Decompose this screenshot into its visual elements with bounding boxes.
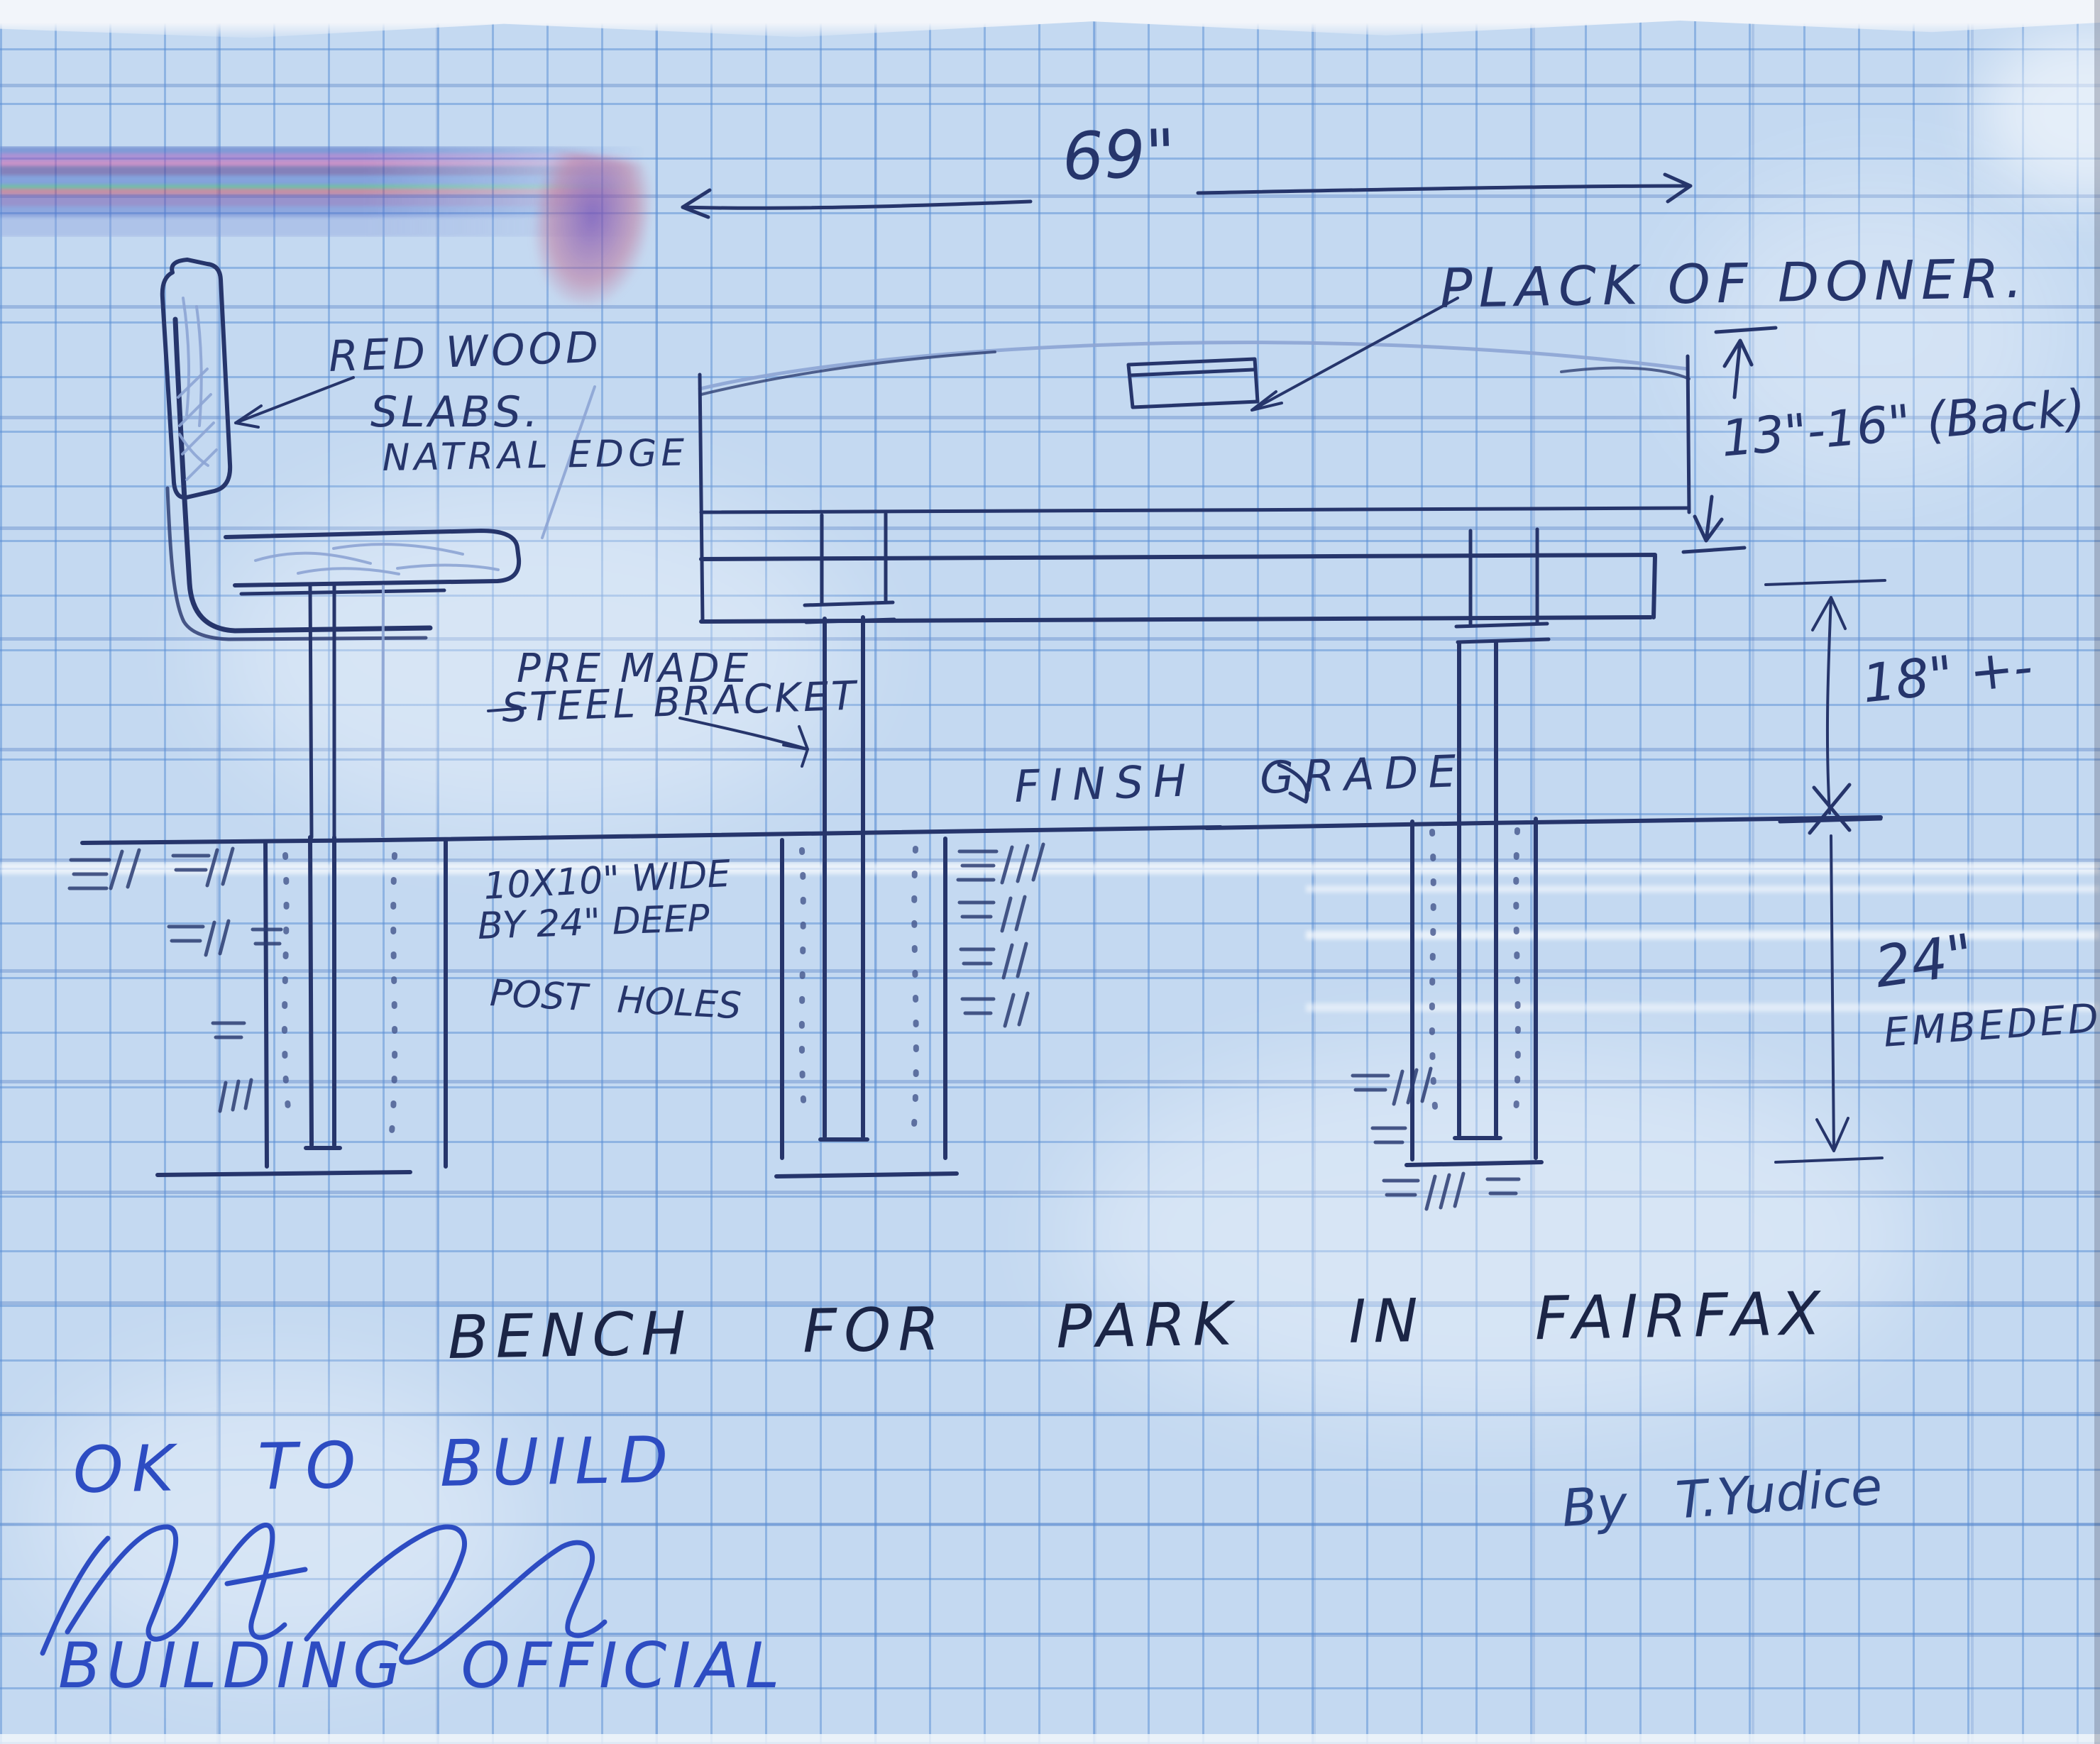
top-arc-left [701, 352, 995, 394]
front-elevation [700, 352, 1689, 642]
soil-hatching [70, 844, 1519, 1209]
embed-depth-dimension [1776, 836, 1882, 1162]
embedded-post [306, 837, 340, 1148]
material-note-line2: SLABS. [370, 387, 542, 437]
hole-walls [265, 840, 446, 1166]
back-rail-bottom [701, 508, 1688, 512]
plaque-label: PLACK OF DONER. [1439, 247, 2030, 320]
elevation-left-edge [700, 375, 703, 622]
donor-plaque-rect [1128, 359, 1258, 407]
bracket-right-front [1456, 529, 1549, 642]
hole-walls [1412, 819, 1536, 1159]
arrow-up-icon [1716, 328, 1776, 397]
approval-stamp-text: OK TO BUILD [72, 1423, 677, 1508]
embed-depth-dim-label: 24" [1871, 922, 1977, 1000]
hole-bottom [158, 1172, 410, 1175]
arrow-right-icon [1665, 175, 1691, 202]
plaque-leader-arrow [1252, 298, 1458, 410]
post-hole-note-line2: BY 24" DEEP [477, 898, 710, 948]
seat-front-edge [241, 590, 444, 594]
steel-bracket-side-inner [167, 488, 426, 639]
graph-paper-scan: 69" PLACK OF DONER. RED WOOD SLABS. NATR… [0, 0, 2100, 1744]
scan-right-edge [2094, 0, 2100, 1744]
finish-grade-line [82, 817, 1881, 843]
post-hole-left [158, 837, 446, 1175]
width-dimension-line [683, 186, 1689, 208]
grade-cross-mark [1780, 785, 1881, 833]
soil-hatch-middle [958, 844, 1043, 1026]
soil-hatch-left [70, 849, 281, 1111]
top-arc-right [1561, 368, 1689, 379]
embedded-post [1455, 641, 1500, 1138]
arrow-left-icon [683, 190, 710, 217]
seat-band [701, 555, 1655, 622]
paper-bottom-edge [0, 1734, 2100, 1744]
material-note-line3: NATRAL EDGE [382, 431, 689, 480]
redwood-leader-arrow [236, 377, 353, 427]
concrete-speckles [285, 830, 1518, 1132]
approver-title-text: BUILDING OFFICIAL [58, 1629, 786, 1702]
side-leg [310, 585, 334, 837]
overall-width-dim-label: 69" [1061, 115, 1177, 194]
bracket-left-front [805, 514, 894, 622]
arrow-down-icon [1683, 497, 1744, 552]
material-note-line1: RED WOOD [328, 323, 603, 382]
hole-bottom [1407, 1162, 1541, 1165]
hole-bottom [776, 1174, 957, 1176]
